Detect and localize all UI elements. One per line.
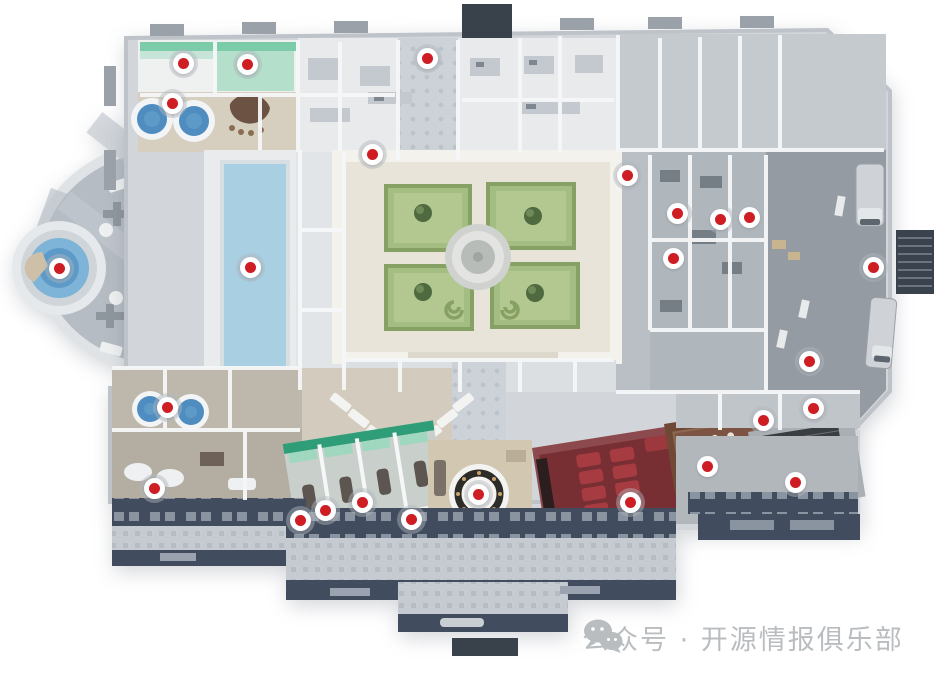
marker-red-dot: [668, 253, 679, 264]
marker-red-dot: [320, 505, 331, 516]
location-marker[interactable]: [352, 492, 373, 513]
marker-red-dot: [808, 403, 819, 414]
location-marker[interactable]: [468, 484, 489, 505]
location-marker[interactable]: [315, 500, 336, 521]
location-marker[interactable]: [710, 209, 731, 230]
marker-layer: [0, 0, 952, 679]
marker-red-dot: [715, 214, 726, 225]
marker-red-dot: [245, 262, 256, 273]
location-marker[interactable]: [667, 203, 688, 224]
marker-red-dot: [744, 212, 755, 223]
location-marker[interactable]: [617, 165, 638, 186]
wechat-icon: [582, 618, 624, 654]
location-marker[interactable]: [620, 492, 641, 513]
location-marker[interactable]: [863, 257, 884, 278]
watermark: 公众号 · 开源情报俱乐部: [582, 618, 904, 657]
marker-red-dot: [672, 208, 683, 219]
location-marker[interactable]: [144, 478, 165, 499]
location-marker[interactable]: [799, 351, 820, 372]
location-marker[interactable]: [697, 456, 718, 477]
location-marker[interactable]: [240, 257, 261, 278]
location-marker[interactable]: [663, 248, 684, 269]
floorplan-page: 公众号 · 开源情报俱乐部: [0, 0, 952, 679]
marker-red-dot: [242, 59, 253, 70]
marker-red-dot: [758, 415, 769, 426]
location-marker[interactable]: [753, 410, 774, 431]
marker-red-dot: [167, 98, 178, 109]
location-marker[interactable]: [401, 509, 422, 530]
marker-red-dot: [295, 515, 306, 526]
location-marker[interactable]: [157, 397, 178, 418]
location-marker[interactable]: [803, 398, 824, 419]
location-marker[interactable]: [237, 54, 258, 75]
marker-red-dot: [367, 149, 378, 160]
marker-red-dot: [473, 489, 484, 500]
location-marker[interactable]: [362, 144, 383, 165]
marker-red-dot: [625, 497, 636, 508]
marker-red-dot: [406, 514, 417, 525]
marker-red-dot: [868, 262, 879, 273]
marker-red-dot: [162, 402, 173, 413]
location-marker[interactable]: [739, 207, 760, 228]
marker-red-dot: [790, 477, 801, 488]
marker-red-dot: [178, 58, 189, 69]
marker-red-dot: [54, 263, 65, 274]
location-marker[interactable]: [162, 93, 183, 114]
location-marker[interactable]: [785, 472, 806, 493]
marker-red-dot: [702, 461, 713, 472]
marker-red-dot: [422, 53, 433, 64]
location-marker[interactable]: [173, 53, 194, 74]
marker-red-dot: [357, 497, 368, 508]
marker-red-dot: [149, 483, 160, 494]
location-marker[interactable]: [290, 510, 311, 531]
marker-red-dot: [622, 170, 633, 181]
watermark-text: 公众号 · 开源情报俱乐部: [582, 618, 904, 657]
location-marker[interactable]: [417, 48, 438, 69]
location-marker[interactable]: [49, 258, 70, 279]
marker-red-dot: [804, 356, 815, 367]
